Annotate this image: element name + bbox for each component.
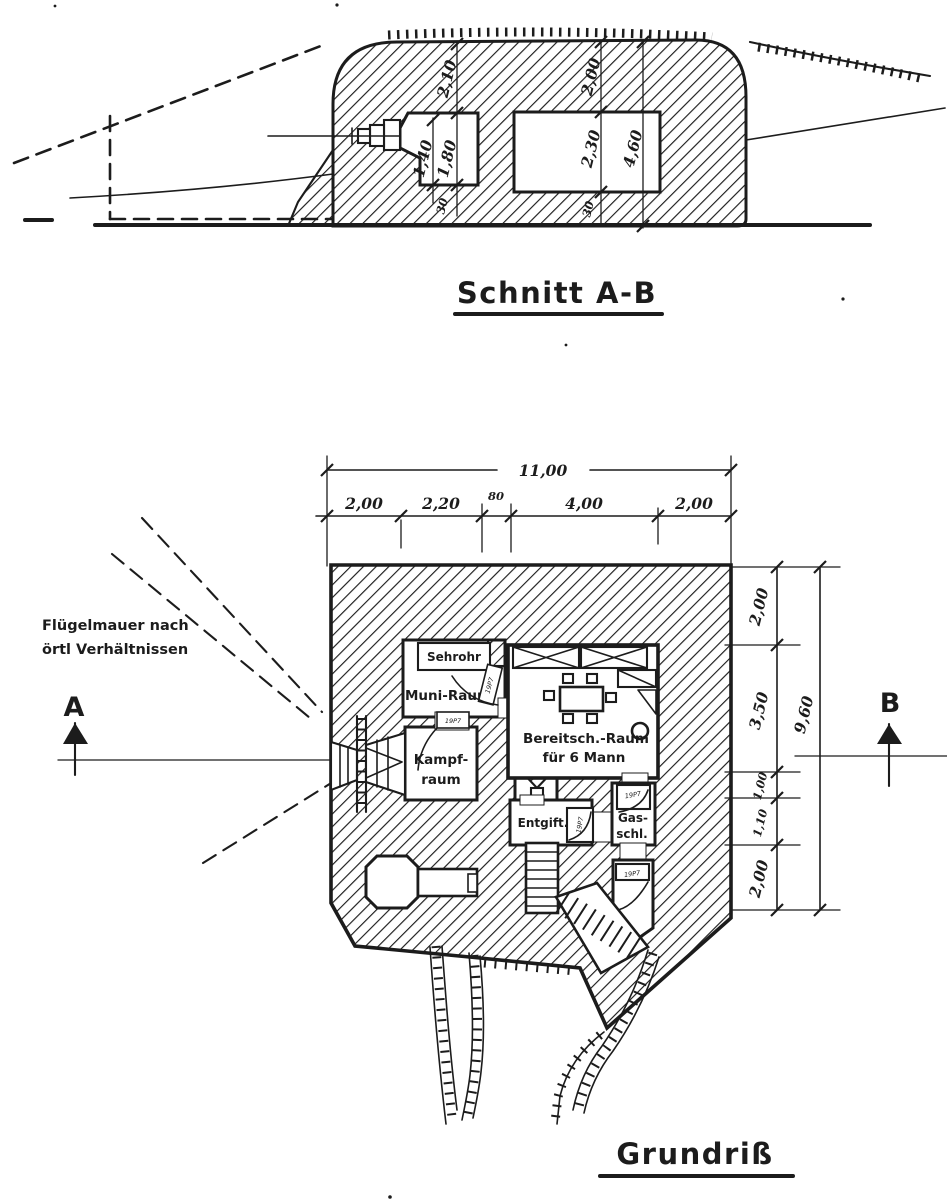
section-bunker-body — [268, 40, 746, 226]
grass-scribble-right — [758, 47, 924, 79]
note-line-2: örtl Verhältnissen — [42, 642, 188, 658]
dim-seg-2: 2,20 — [421, 494, 460, 513]
dim-right-1: 2,00 — [745, 586, 773, 628]
dim-right-2: 3,50 — [745, 690, 773, 731]
note-line-1: Flügelmauer nach — [42, 618, 189, 634]
section-title-group: Schnitt A-B — [455, 276, 662, 314]
plan-dimensions-top: 11,00 2,00 2,20 80 4,00 2,00 — [316, 456, 737, 566]
tobruk-octagon — [366, 856, 418, 908]
room-label-sehrohr: Sehrohr — [427, 650, 481, 664]
bunk-bed-1 — [513, 647, 579, 668]
embrasure-step-1 — [384, 120, 400, 150]
blueprint-page: 2,10 1,40 1,80 2,00 2,30 4,60 30 30 Schn… — [0, 0, 947, 1203]
entgift-door-gap-top — [520, 795, 544, 805]
plan-view: 11,00 2,00 2,20 80 4,00 2,00 Flügelmauer… — [42, 456, 947, 1176]
plan-title: Grundriß — [616, 1137, 773, 1171]
dim-right-overall: 9,60 — [790, 694, 818, 735]
concrete-apron — [288, 150, 333, 226]
ground-line-right — [746, 108, 945, 140]
marker-a-label: A — [64, 692, 85, 723]
terrain-slope-dashed — [14, 44, 326, 163]
tobruk-passage-step — [468, 874, 477, 892]
section-view: 2,10 1,40 1,80 2,00 2,30 4,60 30 30 Schn… — [14, 32, 945, 314]
plan-title-group: Grundriß — [600, 1137, 793, 1176]
grass-scribble-top — [388, 32, 712, 37]
dim-overall-width: 11,00 — [519, 461, 568, 480]
bunk-bed-2 — [581, 647, 647, 668]
plan-dimensions-right: 2,00 3,50 1,00 1,10 2,00 9,60 — [725, 561, 840, 916]
room-label-bereitsch-1: Bereitsch.-Raum — [523, 731, 649, 747]
bunker-drawing: 2,10 1,40 1,80 2,00 2,30 4,60 30 30 Schn… — [0, 0, 947, 1203]
room-label-kampf-2: raum — [421, 772, 460, 788]
room-label-gas-1: Gas- — [618, 811, 648, 825]
trench-wall-b — [462, 953, 473, 1120]
dim-seg-1: 2,00 — [344, 494, 383, 513]
section-title: Schnitt A-B — [457, 276, 657, 310]
room-label-bereitsch-2: für 6 Mann — [543, 750, 626, 766]
dim-right-5: 2,00 — [745, 858, 773, 900]
room-label-entgift: Entgift. — [518, 816, 569, 830]
stairs-straight — [526, 843, 558, 913]
room-label-gas-2: schl. — [616, 827, 647, 841]
door-label-kampf: 19P7 — [445, 717, 462, 725]
dim-right-4: 1,10 — [750, 808, 770, 839]
wing-wall-line-1 — [142, 518, 322, 712]
dim-right-3: 1,00 — [750, 771, 770, 802]
annotation-note: Flügelmauer nach örtl Verhältnissen — [42, 618, 189, 658]
dim-seg-3: 80 — [488, 489, 504, 503]
field-of-fire-lines — [112, 518, 352, 863]
marker-b-label: B — [880, 688, 901, 719]
dim-seg-4: 4,00 — [565, 494, 603, 513]
dim-seg-5: 2,00 — [674, 494, 713, 513]
wing-wall-line-2 — [112, 554, 310, 718]
table — [560, 687, 603, 711]
